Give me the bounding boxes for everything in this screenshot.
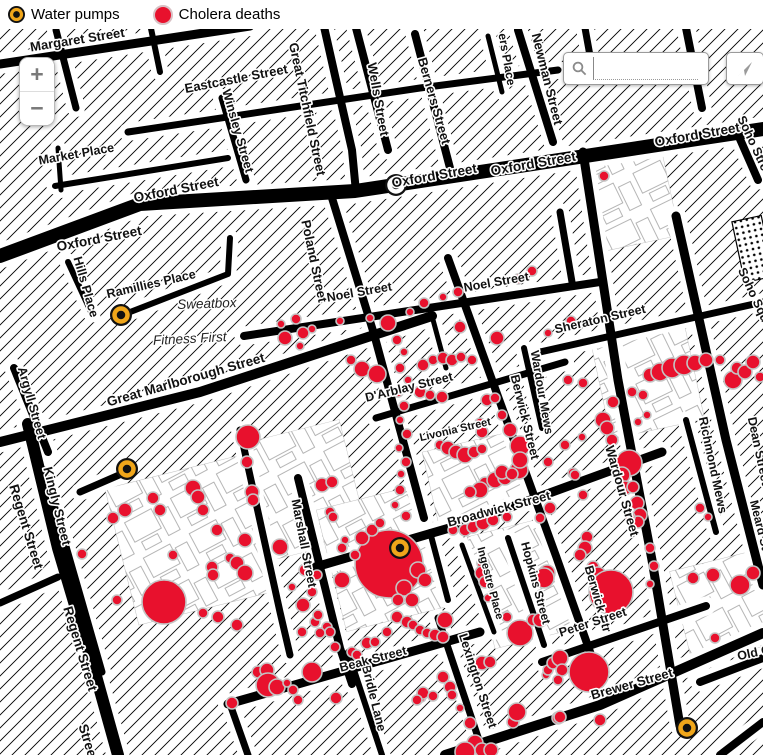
cholera-death-marker[interactable] bbox=[695, 503, 705, 513]
cholera-death-marker[interactable] bbox=[497, 410, 507, 420]
cholera-death-marker[interactable] bbox=[395, 363, 405, 373]
cholera-death-marker[interactable] bbox=[467, 355, 477, 365]
cholera-death-marker[interactable] bbox=[508, 703, 526, 721]
cholera-death-marker[interactable] bbox=[107, 512, 119, 524]
water-pump-marker[interactable] bbox=[110, 304, 132, 326]
cholera-death-marker[interactable] bbox=[578, 433, 586, 441]
cholera-death-marker[interactable] bbox=[315, 628, 325, 638]
cholera-death-marker[interactable] bbox=[325, 627, 335, 637]
cholera-death-marker[interactable] bbox=[291, 314, 301, 324]
cholera-death-marker[interactable] bbox=[197, 504, 209, 516]
cholera-death-marker[interactable] bbox=[328, 512, 338, 522]
cholera-death-marker[interactable] bbox=[346, 355, 356, 365]
cholera-death-marker[interactable] bbox=[484, 743, 498, 755]
cholera-death-marker[interactable] bbox=[447, 690, 457, 700]
cholera-death-marker[interactable] bbox=[392, 594, 404, 606]
cholera-death-marker[interactable] bbox=[326, 476, 338, 488]
zoom-in-button[interactable]: + bbox=[20, 58, 54, 91]
cholera-death-marker[interactable] bbox=[687, 572, 699, 584]
cholera-death-marker[interactable] bbox=[560, 440, 570, 450]
cholera-death-marker[interactable] bbox=[464, 486, 476, 498]
cholera-death-marker[interactable] bbox=[288, 583, 296, 591]
cholera-death-marker[interactable] bbox=[212, 611, 224, 623]
cholera-death-marker[interactable] bbox=[578, 490, 588, 500]
cholera-death-marker[interactable] bbox=[401, 457, 411, 467]
cholera-death-marker[interactable] bbox=[336, 317, 344, 325]
cholera-death-marker[interactable] bbox=[554, 711, 566, 723]
zoom-out-button[interactable]: − bbox=[20, 92, 54, 125]
cholera-death-marker[interactable] bbox=[401, 511, 411, 521]
cholera-death-marker[interactable] bbox=[417, 359, 429, 371]
cholera-death-marker[interactable] bbox=[490, 393, 500, 403]
cholera-death-marker[interactable] bbox=[464, 717, 476, 729]
cholera-death-marker[interactable] bbox=[211, 524, 223, 536]
cholera-death-marker[interactable] bbox=[755, 372, 763, 382]
cholera-death-marker[interactable] bbox=[293, 695, 303, 705]
cholera-death-marker[interactable] bbox=[399, 401, 409, 411]
cholera-death-marker[interactable] bbox=[198, 608, 208, 618]
cholera-death-marker[interactable] bbox=[288, 685, 298, 695]
cholera-death-marker[interactable] bbox=[296, 342, 304, 350]
map-stage: Margaret StreetGreat Titchfield StreetEa… bbox=[0, 0, 763, 755]
cholera-death-marker[interactable] bbox=[715, 355, 725, 365]
cholera-death-marker[interactable] bbox=[297, 327, 309, 339]
cholera-death-marker[interactable] bbox=[425, 390, 435, 400]
cholera-death-marker[interactable] bbox=[710, 633, 720, 643]
cholera-death-marker[interactable] bbox=[437, 612, 453, 628]
cholera-death-marker[interactable] bbox=[570, 470, 580, 480]
cholera-death-marker[interactable] bbox=[237, 565, 253, 581]
cholera-death-marker[interactable] bbox=[397, 470, 405, 478]
cholera-death-marker[interactable] bbox=[556, 664, 568, 676]
water-pump-marker[interactable] bbox=[116, 458, 138, 480]
locate-arrow-icon bbox=[736, 60, 754, 78]
cholera-death-marker[interactable] bbox=[704, 513, 712, 521]
cholera-death-marker[interactable] bbox=[231, 619, 243, 631]
cholera-death-marker[interactable] bbox=[484, 656, 496, 668]
water-pumps-label: Water pumps bbox=[31, 6, 120, 23]
zoom-control: + − bbox=[19, 57, 55, 126]
cholera-death-marker[interactable] bbox=[456, 352, 466, 362]
cholera-death-marker[interactable] bbox=[594, 714, 606, 726]
cholera-death-marker[interactable] bbox=[226, 697, 238, 709]
cholera-death-marker[interactable] bbox=[512, 452, 528, 468]
cholera-death-marker[interactable] bbox=[330, 692, 342, 704]
cholera-death-marker[interactable] bbox=[535, 513, 545, 523]
cholera-death-marker[interactable] bbox=[599, 171, 609, 181]
cholera-death-marker[interactable] bbox=[236, 425, 260, 449]
cholera-death-marker[interactable] bbox=[607, 396, 619, 408]
cholera-death-marker[interactable] bbox=[207, 569, 219, 581]
cholera-death-marker[interactable] bbox=[118, 503, 132, 517]
cholera-death-marker[interactable] bbox=[366, 314, 374, 322]
cholera-death-marker[interactable] bbox=[112, 595, 122, 605]
cholera-death-marker[interactable] bbox=[649, 561, 659, 571]
cholera-death-marker[interactable] bbox=[368, 365, 386, 383]
cholera-death-marker[interactable] bbox=[350, 550, 360, 560]
cholera-death-marker[interactable] bbox=[272, 539, 288, 555]
cholera-death-marker[interactable] bbox=[419, 298, 429, 308]
cholera-death-marker[interactable] bbox=[396, 416, 404, 424]
cholera-death-marker[interactable] bbox=[400, 348, 408, 356]
cholera-death-marker[interactable] bbox=[191, 490, 205, 504]
legend-bar: Water pumps Cholera deaths bbox=[0, 0, 763, 29]
search-icon bbox=[572, 61, 587, 76]
cholera-death-marker[interactable] bbox=[746, 566, 760, 580]
cholera-death-marker[interactable] bbox=[154, 504, 166, 516]
cholera-death-marker[interactable] bbox=[543, 457, 553, 467]
cholera-death-marker[interactable] bbox=[405, 593, 419, 607]
cholera-death-marker[interactable] bbox=[563, 375, 573, 385]
cholera-death-marker[interactable] bbox=[277, 320, 285, 328]
cholera-death-marker[interactable] bbox=[307, 587, 317, 597]
cholera-death-marker[interactable] bbox=[453, 287, 463, 297]
cholera-death-marker[interactable] bbox=[278, 331, 292, 345]
cholera-death-marker[interactable] bbox=[395, 444, 403, 452]
cholera-death-marker[interactable] bbox=[645, 543, 655, 553]
poi-label: Sweatbox bbox=[177, 295, 238, 312]
cholera-death-marker[interactable] bbox=[503, 423, 517, 437]
cholera-death-marker[interactable] bbox=[142, 580, 186, 624]
cholera-death-marker[interactable] bbox=[147, 492, 159, 504]
cholera-death-marker[interactable] bbox=[456, 704, 464, 712]
legend-item-water-pumps[interactable]: Water pumps bbox=[7, 5, 120, 24]
search-box bbox=[563, 52, 709, 85]
cholera-death-marker[interactable] bbox=[168, 550, 178, 560]
cholera-death-marker[interactable] bbox=[375, 518, 385, 528]
cholera-death-marker[interactable] bbox=[418, 573, 432, 587]
cholera-death-marker[interactable] bbox=[646, 580, 654, 588]
water-pump-icon bbox=[7, 5, 26, 24]
cholera-death-icon bbox=[152, 4, 174, 26]
cholera-death-marker[interactable] bbox=[490, 331, 504, 345]
cholera-death-marker[interactable] bbox=[77, 549, 87, 559]
cholera-death-marker[interactable] bbox=[238, 533, 252, 547]
cholera-death-marker[interactable] bbox=[455, 742, 475, 755]
locate-button[interactable] bbox=[726, 52, 763, 85]
cholera-death-marker[interactable] bbox=[247, 494, 259, 506]
cholera-death-marker[interactable] bbox=[578, 378, 588, 388]
cholera-death-marker[interactable] bbox=[412, 695, 422, 705]
cholera-death-marker[interactable] bbox=[380, 315, 396, 331]
cholera-death-marker[interactable] bbox=[395, 485, 405, 495]
cholera-death-marker[interactable] bbox=[382, 627, 392, 637]
cholera-deaths-label: Cholera deaths bbox=[179, 6, 281, 23]
cholera-death-marker[interactable] bbox=[638, 390, 648, 400]
cholera-death-marker[interactable] bbox=[544, 329, 552, 337]
water-pump-marker[interactable] bbox=[676, 717, 698, 739]
cholera-death-marker[interactable] bbox=[706, 568, 720, 582]
search-input[interactable] bbox=[593, 57, 698, 80]
cholera-death-marker[interactable] bbox=[699, 353, 713, 367]
cholera-death-marker[interactable] bbox=[370, 637, 380, 647]
cholera-death-marker[interactable] bbox=[454, 321, 466, 333]
cholera-death-marker[interactable] bbox=[313, 610, 323, 620]
cholera-death-marker[interactable] bbox=[643, 411, 651, 419]
cholera-death-marker[interactable] bbox=[330, 642, 340, 652]
cholera-death-marker[interactable] bbox=[436, 391, 448, 403]
legend-item-cholera-deaths[interactable]: Cholera deaths bbox=[152, 4, 281, 26]
cholera-death-marker[interactable] bbox=[506, 468, 518, 480]
cholera-death-marker[interactable] bbox=[746, 355, 760, 369]
cholera-death-marker[interactable] bbox=[553, 675, 563, 685]
cholera-map-canvas[interactable]: Margaret StreetGreat Titchfield StreetEa… bbox=[0, 0, 763, 755]
cholera-death-marker[interactable] bbox=[477, 444, 487, 454]
cholera-death-marker[interactable] bbox=[297, 627, 307, 637]
cholera-death-marker[interactable] bbox=[574, 549, 586, 561]
cholera-death-marker[interactable] bbox=[527, 266, 537, 276]
cholera-death-marker[interactable] bbox=[437, 631, 449, 643]
cholera-death-marker[interactable] bbox=[392, 335, 402, 345]
cholera-death-marker[interactable] bbox=[402, 429, 412, 439]
cholera-death-marker[interactable] bbox=[600, 421, 614, 435]
cholera-death-marker[interactable] bbox=[428, 691, 438, 701]
cholera-death-marker[interactable] bbox=[406, 308, 414, 316]
cholera-death-marker[interactable] bbox=[730, 575, 750, 595]
cholera-death-marker[interactable] bbox=[241, 456, 253, 468]
water-pump-marker[interactable] bbox=[389, 537, 411, 559]
cholera-death-marker[interactable] bbox=[334, 572, 350, 588]
cholera-death-marker[interactable] bbox=[439, 293, 447, 301]
cholera-death-marker[interactable] bbox=[634, 418, 642, 426]
cholera-death-marker[interactable] bbox=[627, 387, 637, 397]
cholera-death-marker[interactable] bbox=[337, 543, 347, 553]
cholera-death-marker[interactable] bbox=[302, 662, 322, 682]
cholera-death-marker[interactable] bbox=[391, 501, 399, 509]
cholera-death-marker[interactable] bbox=[296, 598, 310, 612]
